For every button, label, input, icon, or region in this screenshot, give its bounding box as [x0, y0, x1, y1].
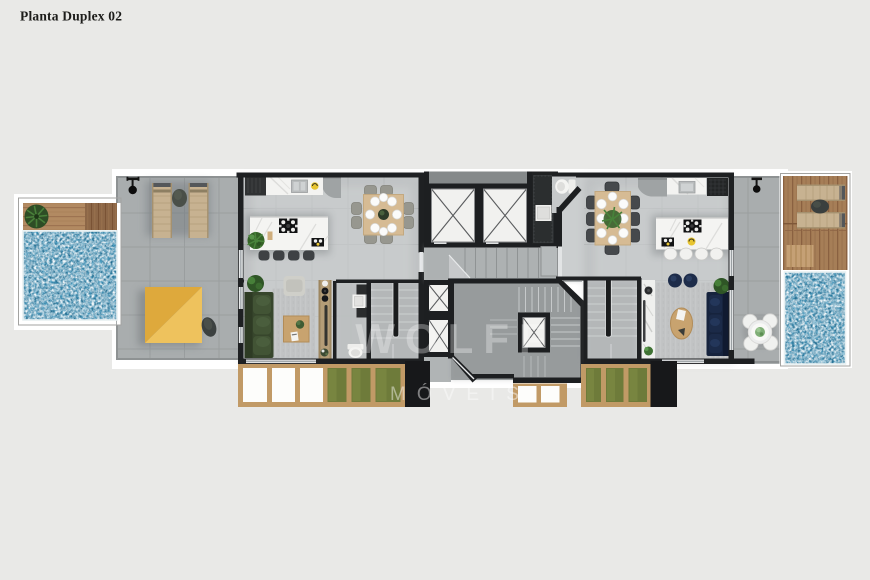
svg-text:MÓVEIS: MÓVEIS: [390, 383, 530, 405]
svg-text:Planta Duplex 02: Planta Duplex 02: [20, 9, 122, 24]
svg-text:WOLFF: WOLFF: [355, 315, 554, 362]
